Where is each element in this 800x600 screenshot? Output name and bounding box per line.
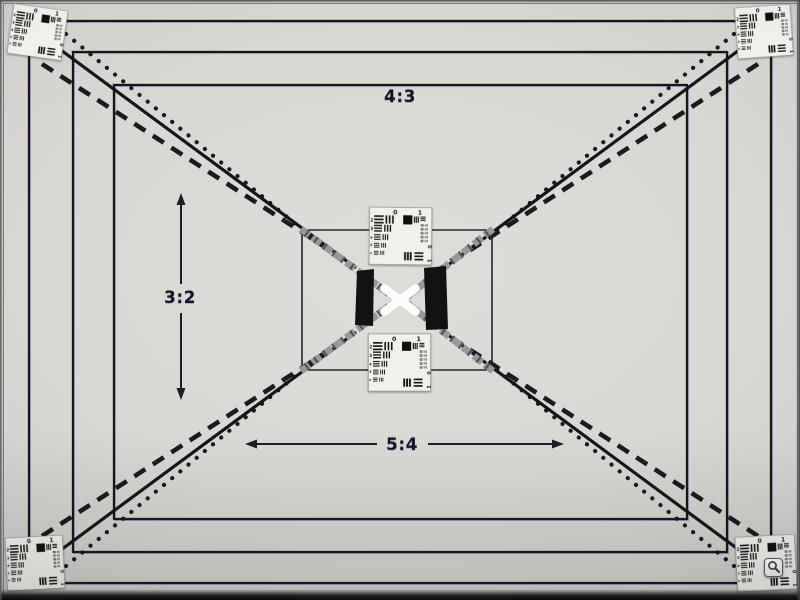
usaf-target-center-bottom	[368, 333, 431, 392]
aspect-label-5-4: 5:4	[386, 435, 418, 455]
black-block-right	[424, 266, 448, 330]
usaf-target-top-right	[734, 3, 794, 60]
usaf-target-bottom-left	[5, 534, 66, 593]
black-block-left	[355, 269, 374, 326]
usaf-target-center-top	[369, 207, 433, 266]
aspect-label-4-3: 4:3	[384, 87, 416, 107]
center-x-mark	[385, 289, 416, 312]
zoom-button[interactable]	[764, 558, 783, 577]
lens-test-chart-photo: 0 1 2 3 4	[0, 0, 800, 600]
aspect-label-3-2: 3:2	[164, 288, 196, 308]
usaf-target-top-left	[7, 2, 69, 61]
magnifier-icon	[766, 559, 782, 575]
